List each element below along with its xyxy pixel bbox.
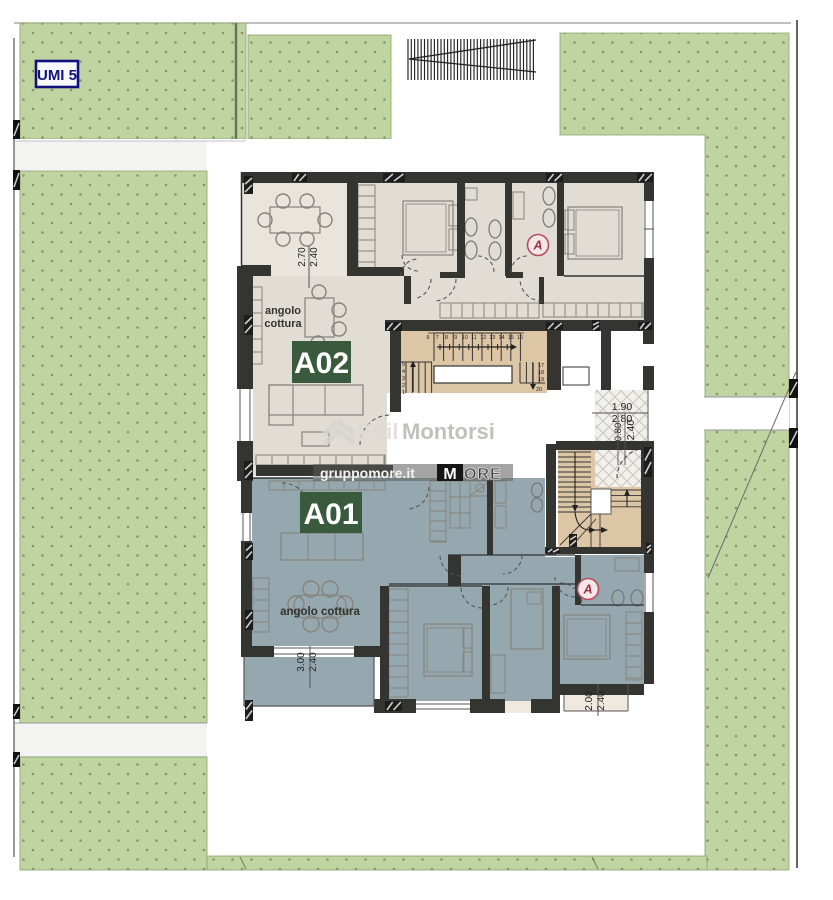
svg-text:5: 5 <box>402 362 405 368</box>
svg-text:gruppomore.it: gruppomore.it <box>320 465 415 481</box>
svg-text:1: 1 <box>402 390 405 396</box>
svg-text:8: 8 <box>445 335 448 341</box>
svg-text:A01: A01 <box>303 498 358 531</box>
svg-text:2.40: 2.40 <box>625 420 637 441</box>
svg-text:4: 4 <box>402 369 405 375</box>
svg-text:2.00: 2.00 <box>584 691 595 711</box>
svg-text:0.80: 0.80 <box>613 423 624 442</box>
svg-text:2.40: 2.40 <box>309 247 320 267</box>
svg-text:3: 3 <box>402 376 405 382</box>
svg-text:3.00: 3.00 <box>296 652 307 672</box>
svg-text:2: 2 <box>402 383 405 389</box>
svg-text:10: 10 <box>462 335 468 341</box>
svg-text:A: A <box>532 239 542 253</box>
svg-text:15: 15 <box>508 335 514 341</box>
svg-text:angolo cottura: angolo cottura <box>280 606 360 618</box>
svg-text:9: 9 <box>454 335 457 341</box>
svg-text:18: 18 <box>538 370 544 376</box>
svg-text:2.70: 2.70 <box>297 247 308 267</box>
svg-text:12: 12 <box>480 335 486 341</box>
svg-text:11: 11 <box>471 335 477 341</box>
svg-text:16: 16 <box>517 335 523 341</box>
svg-text:A: A <box>582 583 592 597</box>
svg-text:UMI 5: UMI 5 <box>37 67 77 84</box>
svg-text:14: 14 <box>499 335 505 341</box>
svg-text:Montorsi: Montorsi <box>402 419 495 444</box>
svg-text:17: 17 <box>538 363 544 369</box>
svg-text:ORE: ORE <box>464 466 502 483</box>
svg-text:M: M <box>443 466 456 483</box>
svg-text:cottura: cottura <box>264 318 302 330</box>
svg-text:1.90: 1.90 <box>612 401 633 413</box>
svg-text:angolo: angolo <box>265 305 301 317</box>
svg-text:20: 20 <box>536 387 542 393</box>
svg-text:A02: A02 <box>294 347 349 380</box>
svg-text:13: 13 <box>489 335 495 341</box>
svg-text:Edil: Edil <box>358 419 398 444</box>
svg-text:19: 19 <box>538 377 544 383</box>
svg-text:7: 7 <box>436 335 439 341</box>
svg-text:6: 6 <box>426 335 429 341</box>
